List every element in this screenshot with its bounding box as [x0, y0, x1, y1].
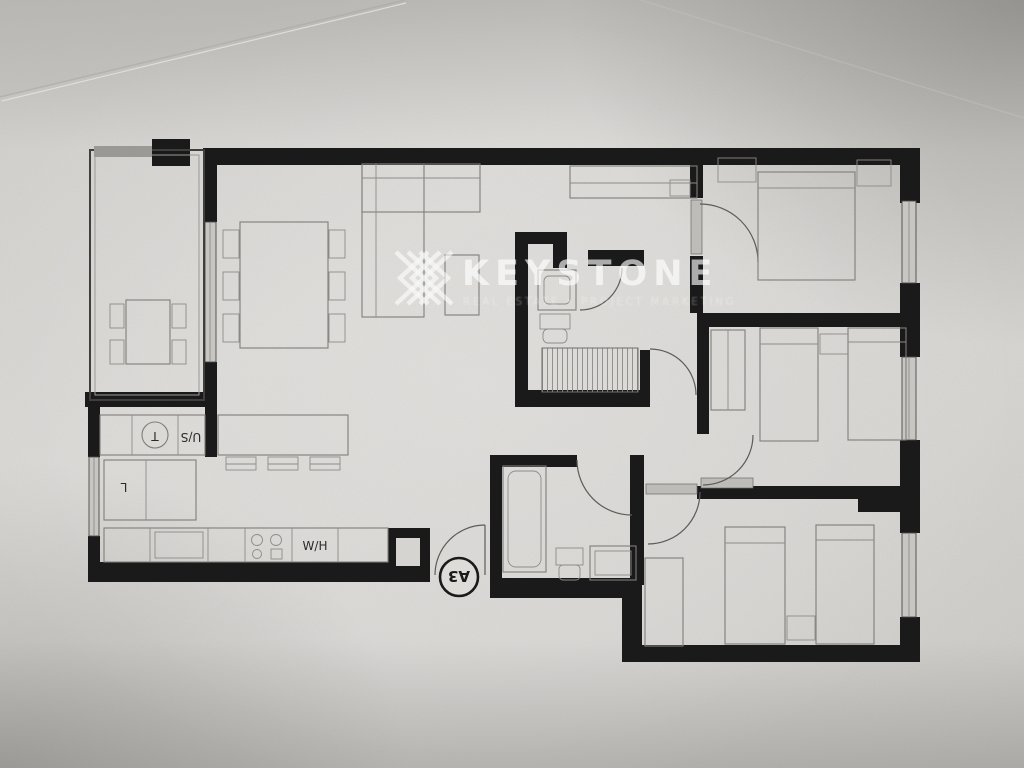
- wall-balcony-door-bottom: [203, 362, 217, 407]
- under-counter-label: U/S: [181, 430, 201, 444]
- unit-label: A3: [440, 558, 478, 596]
- bath1-shower: [542, 348, 638, 392]
- wall-bottom-kitchen: [88, 562, 430, 582]
- wall-bed2-top: [697, 313, 915, 327]
- door-sill-bedroom1: [691, 200, 702, 254]
- closet-label: L: [120, 480, 127, 494]
- unit-label-text: A3: [448, 567, 470, 585]
- wall-top: [203, 148, 915, 165]
- wall-bed2-left: [697, 327, 709, 434]
- window-balcony-door: [205, 222, 216, 362]
- keystone-subtitle-text: REAL ESTATE • PROJECT MARKETING: [463, 296, 736, 308]
- wall-right-1: [900, 148, 920, 203]
- wall-bed3-bottom: [622, 645, 920, 662]
- balcony-rail: [94, 146, 152, 157]
- wall-bath1-bottom: [515, 390, 650, 407]
- wall-bath2-top: [490, 455, 577, 467]
- wall-balcony-block: [152, 139, 190, 166]
- wall-kitchen-stub: [205, 402, 217, 457]
- door-sill-bedroom3: [646, 484, 697, 494]
- wall-bath2-left: [490, 460, 502, 585]
- wall-bed3-block: [858, 486, 905, 512]
- wall-balcony-door-top: [203, 165, 217, 222]
- wall-bath2-bottom: [490, 578, 642, 598]
- wall-bath1-right: [640, 350, 650, 395]
- floor-plan-photo: T U/S L W/H: [0, 0, 1024, 768]
- sink-label: T: [151, 429, 160, 443]
- wall-left-upper: [88, 402, 100, 457]
- floor-plan-canvas: T U/S L W/H: [0, 0, 1024, 768]
- water-heater-label: W/H: [303, 539, 328, 553]
- keystone-brand-text: KEYSTONE: [462, 254, 718, 294]
- entry-closet-inner: [396, 538, 420, 566]
- wall-bath2-right: [630, 455, 644, 585]
